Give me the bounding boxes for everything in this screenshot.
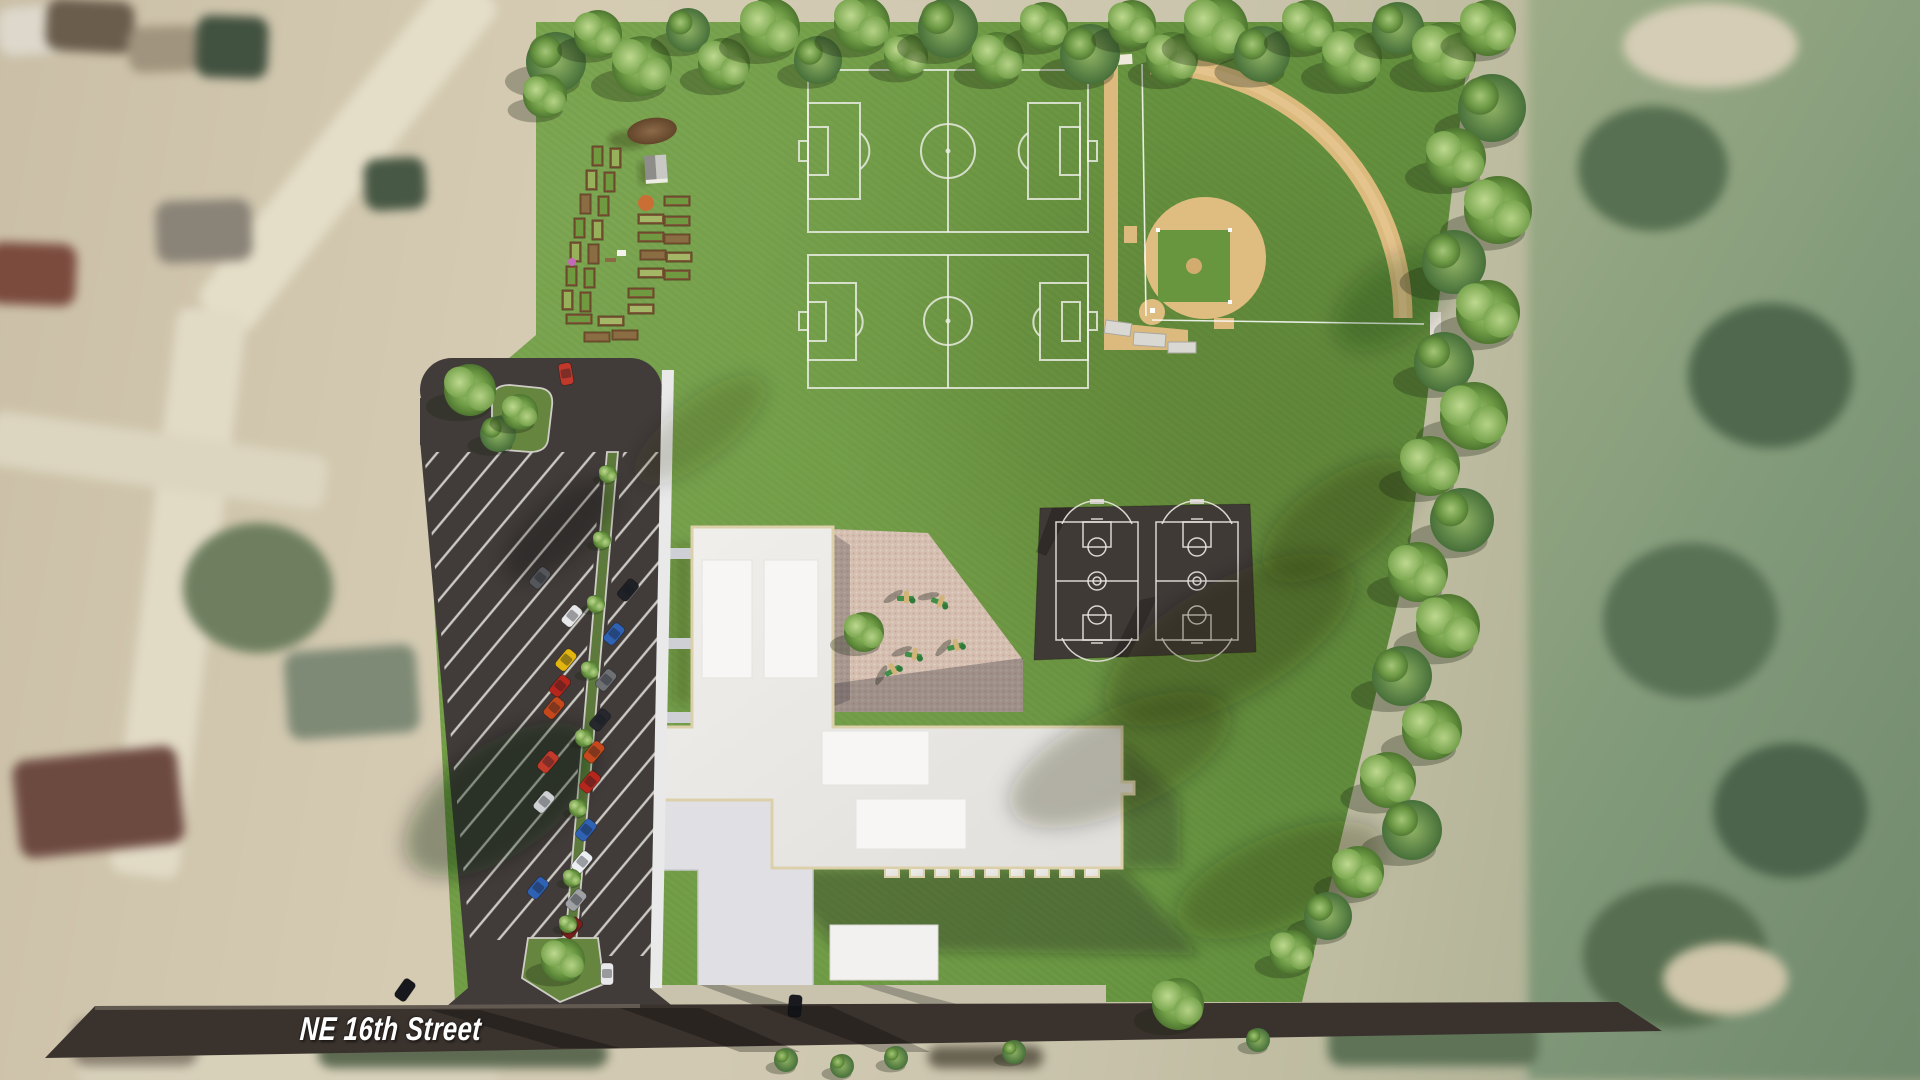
garden-beds: [562, 146, 692, 342]
garden-bed: [604, 172, 615, 192]
garden-bed: [666, 252, 692, 262]
soccer-goal: [799, 141, 808, 161]
parapet-teeth: [885, 868, 1099, 877]
tree: [814, 0, 890, 58]
soccer-field-south: [799, 255, 1097, 388]
pitchers-mound: [1186, 258, 1202, 274]
garden-bed: [610, 148, 621, 168]
tree: [897, 0, 978, 64]
garden-bed: [612, 330, 638, 340]
on-deck-area: [1124, 226, 1137, 243]
garden-bed: [566, 266, 577, 286]
on-deck-area: [1214, 318, 1234, 329]
base: [1156, 228, 1160, 232]
parking-lot: [378, 358, 680, 1012]
garden-bed: [638, 214, 664, 224]
garden-bed: [588, 244, 599, 264]
garden-bed: [586, 170, 597, 190]
tree: [1351, 646, 1432, 712]
parked-car: [601, 963, 614, 985]
garden-shed: [638, 154, 668, 184]
community-garden: [562, 115, 692, 342]
garden-bed: [584, 332, 610, 342]
garden-bed: [664, 270, 690, 280]
garden-bench: [605, 258, 616, 262]
garden-bed: [628, 288, 654, 298]
garden-bed: [664, 216, 690, 226]
garden-bed: [598, 196, 609, 216]
flowering-shrub: [638, 195, 654, 211]
street-tree: [994, 1040, 1026, 1066]
foul-territory-track: [1104, 62, 1118, 334]
flower-patch: [568, 258, 576, 266]
garden-bed: [574, 218, 585, 238]
tree: [719, 0, 800, 64]
building-shadow: [674, 545, 692, 705]
base: [1228, 228, 1232, 232]
tree: [1255, 930, 1314, 978]
tree: [1003, 2, 1068, 55]
garden-bed: [640, 250, 666, 260]
garden-bed: [584, 268, 595, 288]
soccer-goal: [1088, 312, 1097, 330]
garden-bed: [638, 232, 664, 242]
roof-panel: [764, 560, 818, 678]
garden-bed: [628, 304, 654, 314]
car-on-street: [393, 977, 416, 1002]
base: [1228, 300, 1232, 304]
roof-panel: [856, 799, 966, 849]
garden-table: [617, 250, 626, 256]
garden-bed: [562, 290, 573, 310]
garden-bed: [638, 268, 664, 278]
roof-panel: [822, 731, 929, 785]
garden-bed: [566, 314, 592, 324]
patio-pad: [830, 925, 938, 980]
foul-line: [1142, 64, 1146, 316]
street-label: NE 16th Street: [299, 1012, 483, 1045]
garden-bed: [598, 316, 624, 326]
street-tree: [822, 1054, 854, 1080]
soccer-goal: [799, 312, 808, 330]
site-plan-rendering: NE 16th Street: [0, 0, 1920, 1080]
garden-bed: [592, 220, 603, 240]
garden-bed: [664, 234, 690, 244]
garden-bed: [664, 196, 690, 206]
site-features: [0, 0, 1920, 1080]
soccer-goal: [1088, 141, 1097, 161]
garden-bed: [580, 292, 591, 312]
roof-panel: [702, 560, 752, 678]
soccer-field-north: [799, 70, 1097, 232]
home-plate: [1150, 308, 1155, 313]
garden-bed: [592, 146, 603, 166]
garden-bed: [580, 194, 591, 214]
